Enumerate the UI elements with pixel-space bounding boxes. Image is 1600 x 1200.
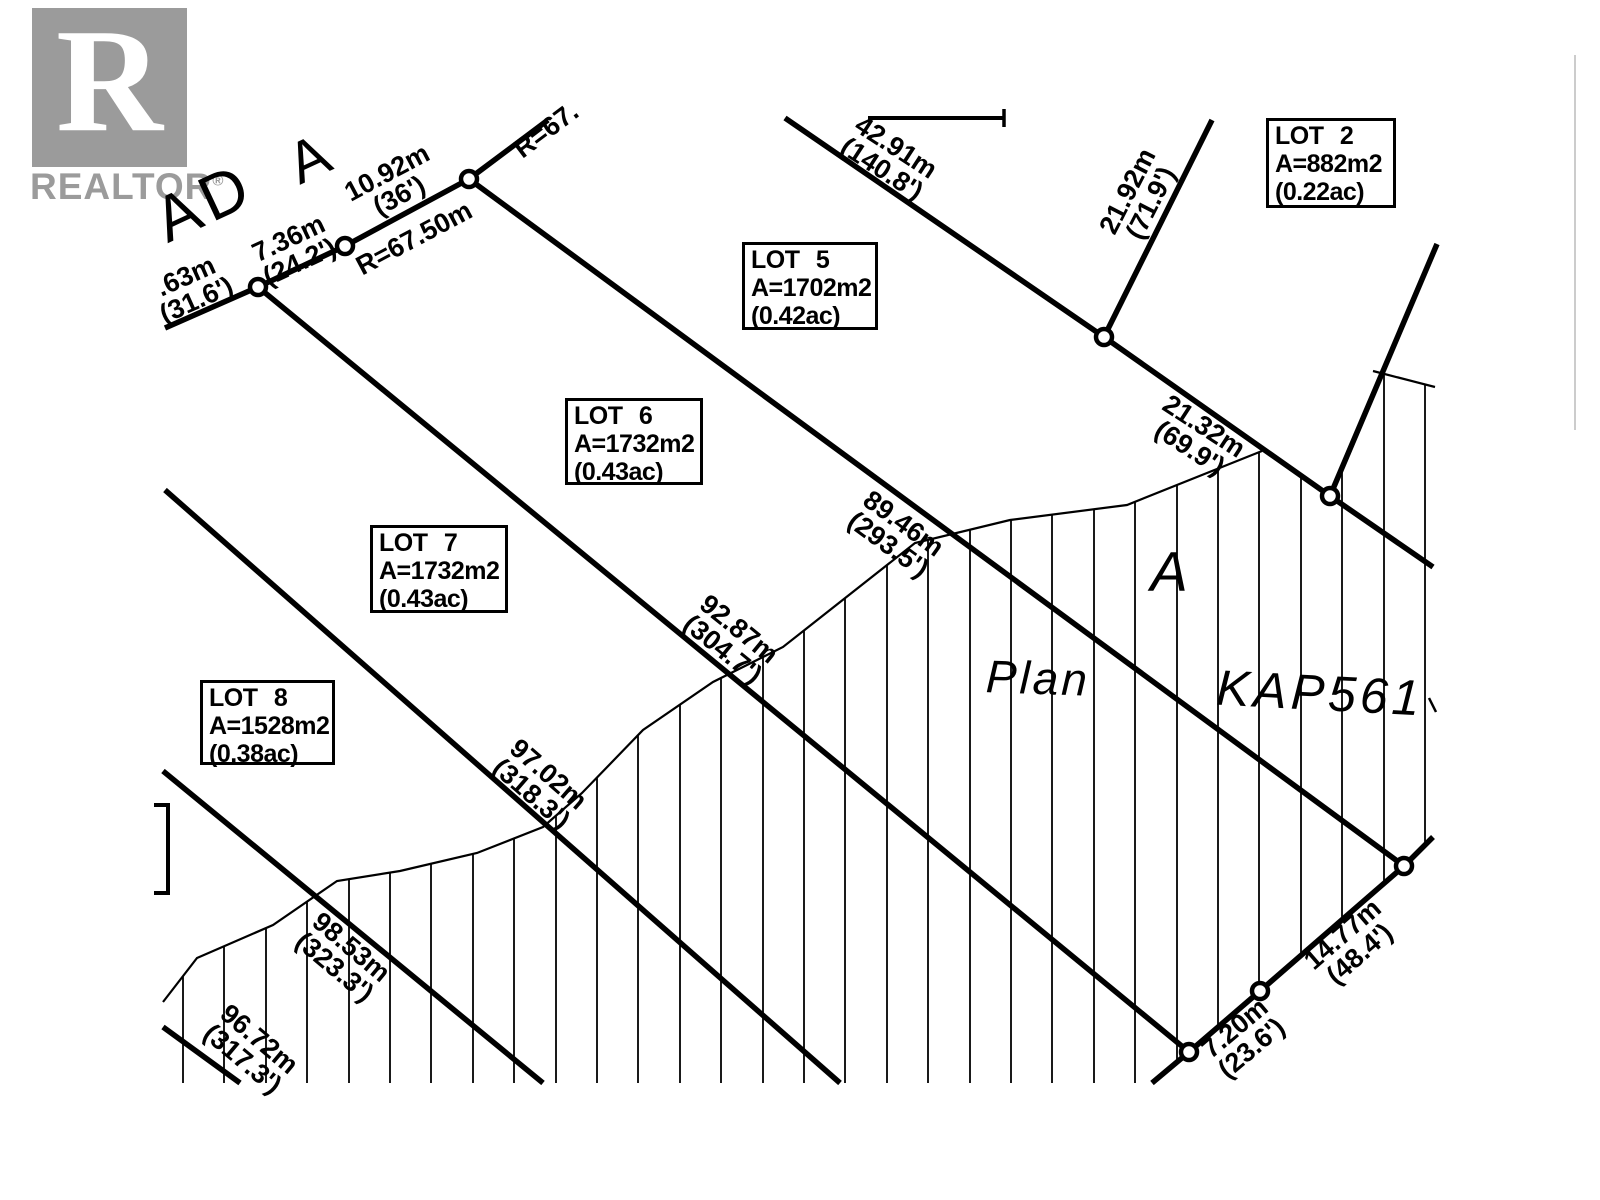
realtor-logo-r-icon: R: [56, 0, 163, 166]
lot-6-info-box: LOT 6 A=1732m2 (0.43ac): [565, 398, 703, 485]
lot-6-area: A=1732m2: [574, 430, 694, 458]
lot-5-title: LOT 5: [751, 246, 869, 274]
lot-2-title: LOT 2: [1275, 122, 1387, 150]
lot-2-area: A=882m2: [1275, 150, 1387, 178]
boundary-lot5-lot6: [469, 179, 1404, 866]
lot-2-acreage: (0.22ac): [1275, 178, 1387, 206]
lot-7-info-box: LOT 7 A=1732m2 (0.43ac): [370, 525, 508, 613]
clipped-character-mark: [1429, 698, 1436, 712]
lot-5-info-box: LOT 5 A=1702m2 (0.42ac): [742, 242, 878, 330]
plan-area-letter: A: [1150, 539, 1187, 604]
lot-7-title: LOT 7: [379, 529, 499, 557]
lot-7-area: A=1732m2: [379, 557, 499, 585]
lot-8-info-box: LOT 8 A=1528m2 (0.38ac): [200, 680, 335, 765]
lot-6-acreage: (0.43ac): [574, 458, 694, 486]
survey-plan-page: R REALTOR® AD A LOT 2 A=882m2 (0.22ac) L…: [0, 0, 1600, 1200]
lot-8-title: LOT 8: [209, 684, 326, 712]
realtor-logo: R: [32, 8, 187, 167]
clipped-box-bracket: [154, 805, 168, 893]
plan-number: KAP561: [1215, 659, 1425, 728]
lot-8-area: A=1528m2: [209, 712, 326, 740]
lot-2-info-box: LOT 2 A=882m2 (0.22ac): [1266, 118, 1396, 208]
lot-5-acreage: (0.42ac): [751, 302, 869, 330]
lot-7-acreage: (0.43ac): [379, 585, 499, 613]
lot-6-title: LOT 6: [574, 402, 694, 430]
lot-5-area: A=1702m2: [751, 274, 869, 302]
lot-8-acreage: (0.38ac): [209, 740, 326, 768]
plan-word: Plan: [985, 649, 1091, 707]
